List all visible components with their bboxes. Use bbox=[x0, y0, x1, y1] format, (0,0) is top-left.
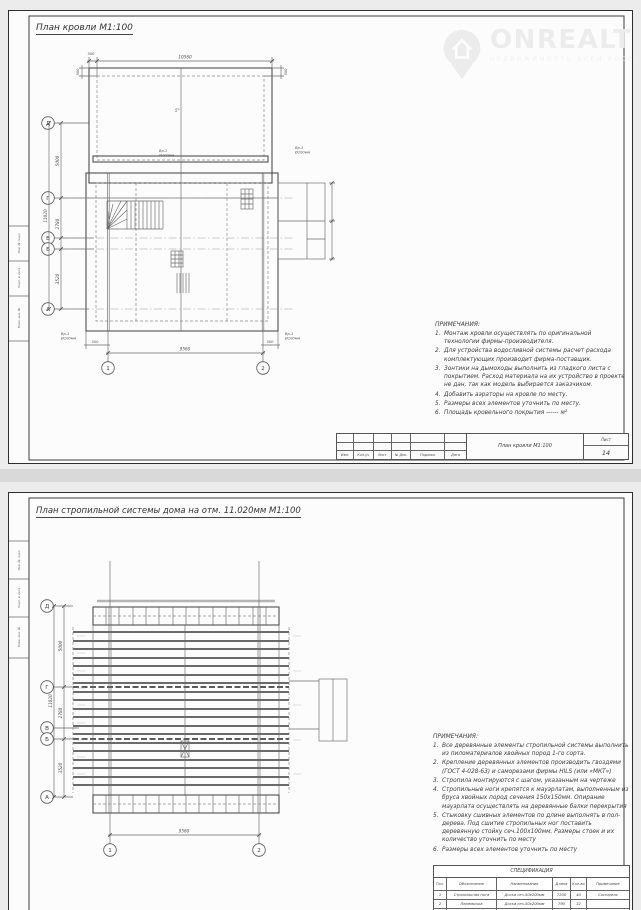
note-number: 6. bbox=[435, 409, 444, 417]
dim-label: 9560 bbox=[180, 347, 191, 352]
note-item: 3.Стропила монтируются с шагом, указанны… bbox=[433, 777, 630, 785]
chimney bbox=[171, 189, 253, 293]
funnel-label: Ø100мм bbox=[158, 153, 174, 158]
sheet-number: 14 bbox=[584, 446, 628, 460]
spec-cell: 790 bbox=[553, 900, 571, 908]
roof-outline bbox=[67, 68, 294, 331]
stamp-label: Подп. и дата bbox=[17, 268, 21, 289]
note-number: 3. bbox=[433, 777, 442, 785]
note-text: Размеры всех элементов уточнить по месту bbox=[442, 846, 630, 854]
dim-label: 10560 bbox=[178, 55, 192, 60]
sheet-roof-plan: Инв. № подл. Подп. и дата Взам. инв. № Д… bbox=[8, 10, 633, 464]
dim-label: 500 bbox=[76, 68, 80, 76]
stamp-label: Взам. инв. № bbox=[17, 627, 21, 647]
sheet2-notes: ПРИМЕЧАНИЯ: 1.Все деревянные элементы ст… bbox=[433, 733, 630, 855]
note-number: 4. bbox=[435, 391, 444, 399]
sheet-word: Лист bbox=[584, 434, 628, 446]
note-item: 3.Зонтики на дымоходы выполнить из гладк… bbox=[435, 365, 627, 390]
note-item: 4.Стропильные ноги крепятся к мауэрлатам… bbox=[433, 786, 630, 811]
note-text: Стропильные ноги крепятся к мауэрлатам, … bbox=[442, 786, 630, 811]
note-item: 5.Стыковку сшивных элементов по длине вы… bbox=[433, 812, 630, 845]
tb-label: № Док. bbox=[392, 451, 412, 459]
axis-label: Д bbox=[45, 604, 50, 610]
spec-cell: Доска сеч.50х200мм bbox=[497, 891, 553, 899]
note-number: 1. bbox=[435, 330, 444, 346]
dim-label: 500 bbox=[267, 340, 275, 344]
tb-label: Изм. bbox=[337, 451, 354, 459]
axis-markers-cols: 1 2 bbox=[104, 839, 266, 856]
axis-label: Г bbox=[46, 196, 50, 202]
note-item: 6.Площадь кровельного покрытия ------ м² bbox=[435, 409, 627, 417]
sheet-rafter-plan: Инв. № подл. Подп. и дата Взам. инв. № Д… bbox=[8, 492, 633, 910]
title-block-sheet: Лист 14 bbox=[583, 434, 628, 459]
table-row: 2 Перемычка Доска сеч.50х200мм 790 32 bbox=[434, 899, 629, 908]
tb-label: Кол.уч bbox=[354, 451, 374, 459]
spec-cell bbox=[587, 900, 629, 908]
spec-col-header: Наименование bbox=[497, 878, 553, 890]
note-text: Добавить аэраторы на кровле по месту. bbox=[444, 391, 627, 399]
spec-cell: 2 bbox=[434, 900, 447, 908]
note-number: 2. bbox=[433, 759, 442, 775]
note-text: Стропила монтируются с шагом, указанным … bbox=[442, 777, 630, 785]
title-block: Изм. Кол.уч Лист № Док. Подпись Дата Пла… bbox=[336, 433, 629, 460]
mauerlat-band-bottom bbox=[93, 795, 279, 813]
note-number: 3. bbox=[435, 365, 444, 390]
note-text: Для устройства водосливной системы расче… bbox=[444, 347, 627, 363]
stamp-label: Инв. № подл. bbox=[17, 550, 21, 571]
spec-cell: Доска сеч.50х200мм bbox=[497, 900, 553, 908]
spec-header-row: Поз. Обозначение Наименование Длина Кол-… bbox=[434, 878, 629, 890]
tb-label: Лист bbox=[374, 451, 392, 459]
specification-table: СПЕЦИФИКАЦИЯ Поз. Обозначение Наименован… bbox=[433, 865, 630, 910]
staircase bbox=[107, 201, 163, 229]
note-text: Зонтики на дымоходы выполнить из гладког… bbox=[444, 365, 627, 390]
spec-col-header: Обозначение bbox=[447, 878, 497, 890]
spec-col-header: Длина bbox=[553, 878, 571, 890]
spec-col-header: Поз. bbox=[434, 878, 447, 890]
left-margin-stamp: Инв. № подл. Подп. и дата Взам. инв. № bbox=[9, 226, 29, 341]
note-text: Площадь кровельного покрытия ------ м² bbox=[444, 409, 627, 417]
stamp-label: Подп. и дата bbox=[17, 588, 21, 609]
mauerlat-band-top bbox=[93, 561, 279, 625]
house-pin-icon bbox=[439, 26, 485, 82]
note-text: Монтаж кровли осуществлять по оригинальн… bbox=[444, 330, 627, 346]
axis-markers-cols: 1 2 bbox=[102, 357, 270, 374]
stamp-label: Инв. № подл. bbox=[17, 233, 21, 254]
note-number: 5. bbox=[435, 400, 444, 408]
table-row: 1 Стропильная нога Доска сеч.50х200мм 72… bbox=[434, 890, 629, 899]
sheet1-title: План кровли М1:100 bbox=[36, 23, 133, 35]
drain-funnel-callouts: Вр-1 Ø100мм Вр-1 Ø100мм Вр-1 Ø100мм Вр-1… bbox=[60, 146, 310, 341]
dim-label: 500 bbox=[284, 68, 288, 76]
spec-cell: Стропильная нога bbox=[447, 891, 497, 899]
spec-cell: 7200 bbox=[553, 891, 571, 899]
tb-label: Дата bbox=[445, 451, 466, 459]
funnel-label: Вр-1 bbox=[159, 149, 167, 153]
funnel-label: Вр-1 bbox=[61, 332, 69, 336]
dim-label: 11020 bbox=[48, 694, 53, 708]
axis-label: 1 bbox=[108, 848, 112, 854]
sheet-divider bbox=[0, 469, 641, 482]
note-item: 6.Размеры всех элементов уточнить по мес… bbox=[433, 846, 630, 854]
axis-label: 2 bbox=[257, 848, 261, 854]
title-block-grid: Изм. Кол.уч Лист № Док. Подпись Дата bbox=[337, 434, 467, 459]
axis-label: В bbox=[45, 726, 49, 732]
axis-label: Б bbox=[45, 737, 49, 743]
note-item: 2.Крепление деревянных элементов произво… bbox=[433, 759, 630, 775]
axis-label: 2 bbox=[261, 366, 265, 372]
spec-cell: 32 bbox=[571, 900, 587, 908]
rafters bbox=[73, 607, 301, 813]
note-text: Размеры всех элементов уточнить по месту… bbox=[444, 400, 627, 408]
dim-label: 5000 bbox=[55, 155, 60, 166]
funnel-label: Вр-1 bbox=[295, 146, 303, 150]
note-number: 1. bbox=[433, 742, 442, 758]
funnel-label: Ø100мм bbox=[294, 150, 310, 155]
note-item: 4.Добавить аэраторы на кровле по месту. bbox=[435, 391, 627, 399]
notes-heading: ПРИМЕЧАНИЯ: bbox=[433, 733, 630, 740]
left-margin-stamp: Инв. № подл. Подп. и дата Взам. инв. № bbox=[9, 541, 29, 658]
dimension-lines: 10560 500 500 500 5000 2780 3520 11020 9… bbox=[43, 52, 288, 357]
note-number: 6. bbox=[433, 846, 442, 854]
tb-label: Подпись bbox=[411, 451, 445, 459]
dim-label: 500 bbox=[92, 340, 100, 344]
axis-label: 1 bbox=[106, 366, 110, 372]
axis-label: Г bbox=[45, 685, 49, 691]
note-number: 4. bbox=[433, 786, 442, 811]
dim-label: 3520 bbox=[58, 762, 63, 773]
spec-cell: 1 bbox=[434, 891, 447, 899]
sheet1-notes: ПРИМЕЧАНИЯ: 1.Монтаж кровли осуществлять… bbox=[435, 321, 627, 418]
note-text: Крепление деревянных элементов производи… bbox=[442, 759, 630, 775]
dim-label: 2780 bbox=[55, 218, 60, 229]
note-item: 1.Монтаж кровли осуществлять по оригинал… bbox=[435, 330, 627, 346]
slope-label: 5° bbox=[175, 108, 180, 113]
dim-label: 2780 bbox=[58, 707, 63, 718]
note-item: 1.Все деревянные элементы стропильной си… bbox=[433, 742, 630, 758]
spec-col-header: Примечание bbox=[587, 878, 629, 890]
dim-label: 3520 bbox=[55, 273, 60, 284]
spec-cell: 40 bbox=[571, 891, 587, 899]
note-text: Все деревянные элементы стропильной сист… bbox=[442, 742, 630, 758]
funnel-label: Ø100мм bbox=[284, 336, 300, 341]
sheet2-title: План стропильной системы дома на отм. 11… bbox=[36, 506, 301, 518]
note-item: 2.Для устройства водосливной системы рас… bbox=[435, 347, 627, 363]
notes-heading: ПРИМЕЧАНИЯ: bbox=[435, 321, 627, 328]
dim-label: 500 bbox=[88, 52, 96, 56]
funnel-label: Вр-1 bbox=[285, 332, 293, 336]
watermark-tagline: НЕДВИЖИМОСТЬ ВСЕЙ РОССИИ bbox=[490, 56, 641, 63]
dim-label: 5000 bbox=[58, 640, 63, 651]
page-background: Инв. № подл. Подп. и дата Взам. инв. № Д… bbox=[0, 0, 641, 910]
onrealt-watermark: ONREALT НЕДВИЖИМОСТЬ ВСЕЙ РОССИИ bbox=[439, 26, 641, 82]
axis-label: Б bbox=[46, 247, 50, 253]
rafter-right-callout bbox=[289, 679, 347, 741]
axis-label: В bbox=[46, 236, 50, 242]
watermark-brand: ONREALT bbox=[490, 26, 641, 55]
stamp-label: Взам. инв. № bbox=[17, 308, 21, 328]
dim-label: 9560 bbox=[179, 829, 190, 834]
title-block-doc-title: План кровли М1:100 bbox=[467, 434, 583, 459]
axis-label: А bbox=[45, 795, 49, 801]
note-number: 2. bbox=[435, 347, 444, 363]
spec-title: СПЕЦИФИКАЦИЯ bbox=[434, 866, 629, 878]
dim-label: 11020 bbox=[43, 209, 48, 223]
funnel-label: Ø100мм bbox=[60, 336, 76, 341]
spec-cell: Перемычка bbox=[447, 900, 497, 908]
note-number: 5. bbox=[433, 812, 442, 845]
note-item: 5.Размеры всех элементов уточнить по мес… bbox=[435, 400, 627, 408]
spec-col-header: Кол-во bbox=[571, 878, 587, 890]
note-text: Стыковку сшивных элементов по длине выпо… bbox=[442, 812, 630, 845]
spec-cell: Сосна/ель bbox=[587, 891, 629, 899]
